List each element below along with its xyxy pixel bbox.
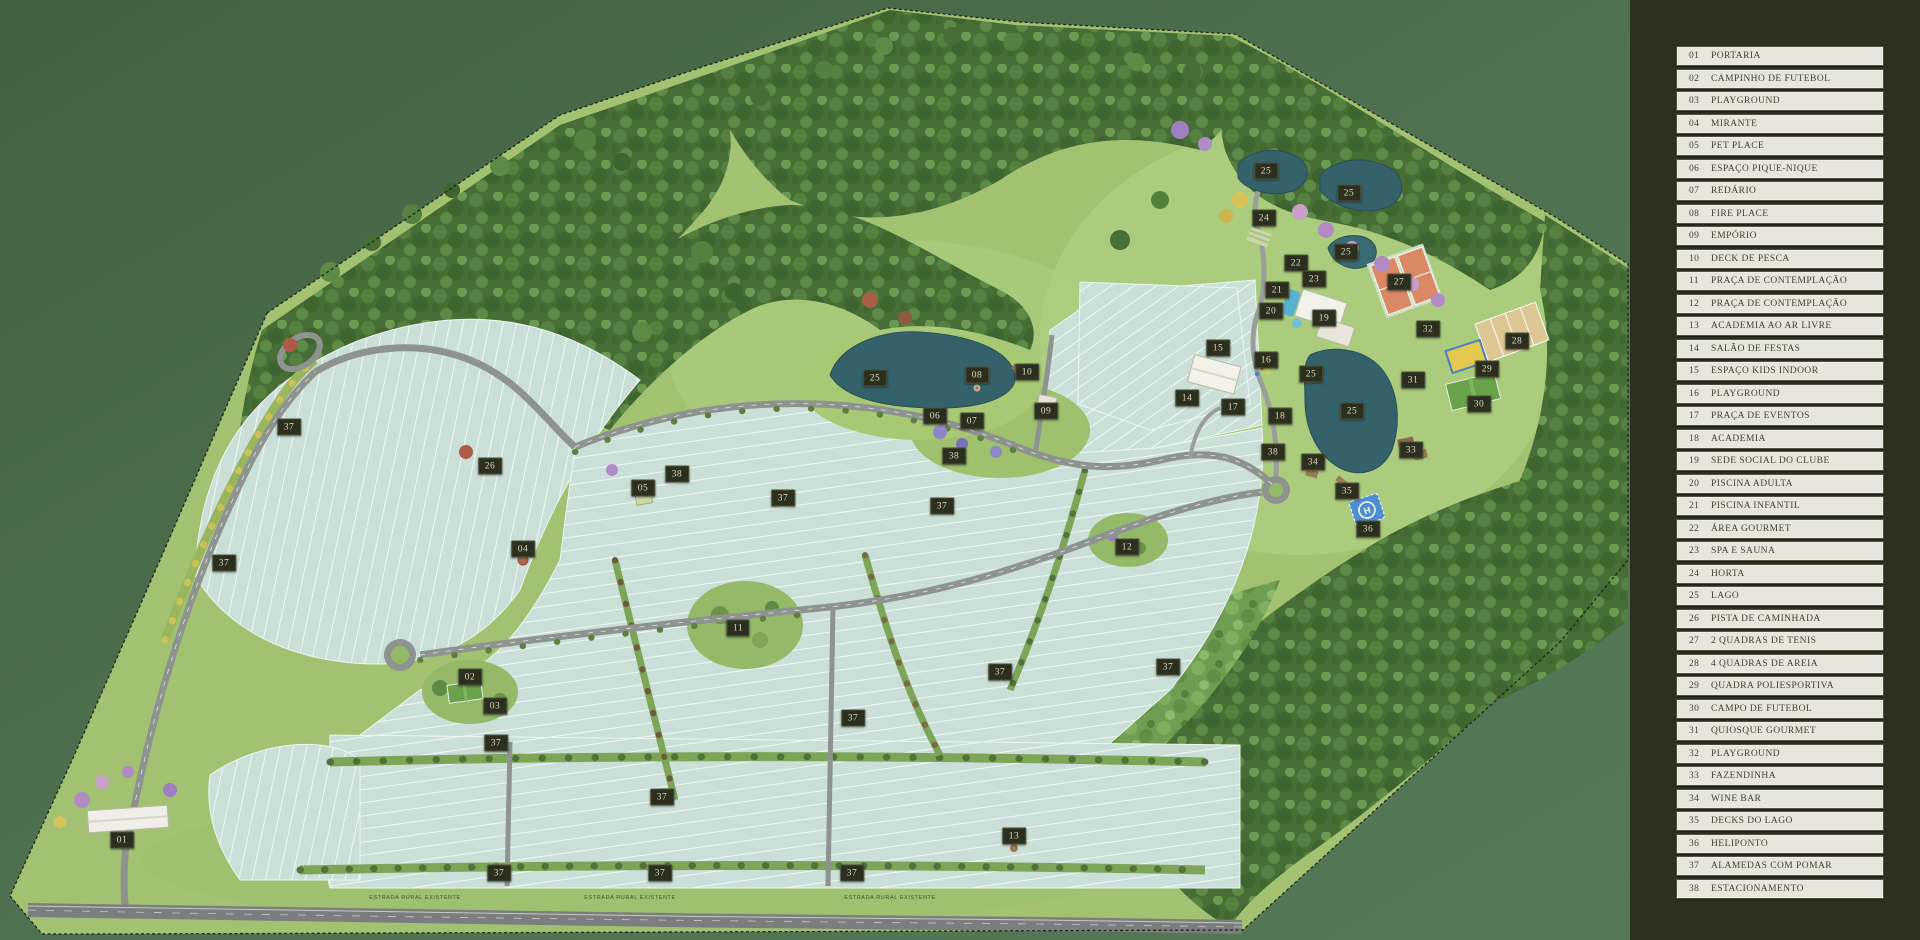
legend-item-label: LAGO — [1711, 591, 1739, 601]
legend-item-label: PET PLACE — [1711, 141, 1764, 151]
legend-item-label: PRAÇA DE CONTEMPLAÇÃO — [1711, 276, 1847, 286]
legend-item-02[interactable]: 02CAMPINHO DE FUTEBOL — [1676, 69, 1884, 89]
legend-item-label: ACADEMIA AO AR LIVRE — [1711, 321, 1832, 331]
map-marker-14[interactable]: 14 — [1175, 390, 1199, 407]
legend-item-label: ACADEMIA — [1711, 434, 1766, 444]
map-marker-36[interactable]: 36 — [1356, 521, 1380, 538]
map-marker-38[interactable]: 38 — [665, 466, 689, 483]
map-marker-23[interactable]: 23 — [1302, 271, 1326, 288]
legend-item-label: PLAYGROUND — [1711, 96, 1780, 106]
legend-item-38[interactable]: 38ESTACIONAMENTO — [1676, 879, 1884, 899]
legend-item-label: ESPAÇO KIDS INDOOR — [1711, 366, 1819, 376]
map-marker-30[interactable]: 30 — [1467, 396, 1491, 413]
map-marker-27[interactable]: 27 — [1387, 274, 1411, 291]
legend-item-label: PISTA DE CAMINHADA — [1711, 614, 1821, 624]
map-marker-22[interactable]: 22 — [1284, 255, 1308, 272]
legend-item-34[interactable]: 34WINE BAR — [1676, 789, 1884, 809]
map-marker-25[interactable]: 25 — [1337, 185, 1361, 202]
legend-item-33[interactable]: 33FAZENDINHA — [1676, 766, 1884, 786]
legend-item-31[interactable]: 31QUIOSQUE GOURMET — [1676, 721, 1884, 741]
legend-item-number: 15 — [1689, 366, 1711, 376]
legend-item-25[interactable]: 25LAGO — [1676, 586, 1884, 606]
legend-item-label: CAMPINHO DE FUTEBOL — [1711, 74, 1830, 84]
map-marker-37[interactable]: 37 — [930, 498, 954, 515]
legend-item-number: 24 — [1689, 569, 1711, 579]
legend-item-number: 18 — [1689, 434, 1711, 444]
map-marker-19[interactable]: 19 — [1312, 310, 1336, 327]
map-marker-18[interactable]: 18 — [1268, 408, 1292, 425]
map-marker-34[interactable]: 34 — [1301, 454, 1325, 471]
legend-item-13[interactable]: 13ACADEMIA AO AR LIVRE — [1676, 316, 1884, 336]
map-marker-16[interactable]: 16 — [1254, 352, 1278, 369]
legend-item-15[interactable]: 15ESPAÇO KIDS INDOOR — [1676, 361, 1884, 381]
legend-item-label: FAZENDINHA — [1711, 771, 1776, 781]
map-marker-32[interactable]: 32 — [1416, 321, 1440, 338]
legend-item-label: PISCINA ADULTA — [1711, 479, 1793, 489]
legend-item-label: 4 QUADRAS DE AREIA — [1711, 659, 1818, 669]
legend-item-label: PISCINA INFANTIL — [1711, 501, 1800, 511]
map-marker-08[interactable]: 08 — [965, 367, 989, 384]
map-marker-37[interactable]: 37 — [841, 710, 865, 727]
legend-panel: 01PORTARIA02CAMPINHO DE FUTEBOL03PLAYGRO… — [1630, 0, 1920, 940]
legend-item-label: QUADRA POLIESPORTIVA — [1711, 681, 1834, 691]
legend-item-label: PLAYGROUND — [1711, 749, 1780, 759]
map-marker-28[interactable]: 28 — [1505, 333, 1529, 350]
legend-item-number: 05 — [1689, 141, 1711, 151]
map-marker-37[interactable]: 37 — [487, 865, 511, 882]
legend-item-number: 28 — [1689, 659, 1711, 669]
map-marker-25[interactable]: 25 — [863, 370, 887, 387]
legend-item-label: HELIPONTO — [1711, 839, 1768, 849]
legend-item-20[interactable]: 20PISCINA ADULTA — [1676, 474, 1884, 494]
map-marker-05[interactable]: 05 — [631, 480, 655, 497]
map-marker-37[interactable]: 37 — [1156, 659, 1180, 676]
map-marker-09[interactable]: 09 — [1034, 403, 1058, 420]
map-marker-25[interactable]: 25 — [1299, 366, 1323, 383]
legend-item-03[interactable]: 03PLAYGROUND — [1676, 91, 1884, 111]
legend-item-number: 13 — [1689, 321, 1711, 331]
map-marker-15[interactable]: 15 — [1206, 340, 1230, 357]
legend-item-number: 37 — [1689, 861, 1711, 871]
map-marker-38[interactable]: 38 — [1261, 444, 1285, 461]
legend-item-label: FIRE PLACE — [1711, 209, 1769, 219]
legend-item-number: 36 — [1689, 839, 1711, 849]
map-marker-37[interactable]: 37 — [648, 865, 672, 882]
legend-item-label: PRAÇA DE EVENTOS — [1711, 411, 1810, 421]
legend-item-label: 2 QUADRAS DE TENIS — [1711, 636, 1816, 646]
legend-item-label: ESTACIONAMENTO — [1711, 884, 1804, 894]
legend-item-32[interactable]: 32PLAYGROUND — [1676, 744, 1884, 764]
legend-item-number: 31 — [1689, 726, 1711, 736]
legend-item-number: 09 — [1689, 231, 1711, 241]
legend-list: 01PORTARIA02CAMPINHO DE FUTEBOL03PLAYGRO… — [1676, 46, 1884, 899]
map-marker-33[interactable]: 33 — [1399, 442, 1423, 459]
legend-item-29[interactable]: 29QUADRA POLIESPORTIVA — [1676, 676, 1884, 696]
legend-item-number: 38 — [1689, 884, 1711, 894]
map-marker-13[interactable]: 13 — [1002, 828, 1026, 845]
map-marker-12[interactable]: 12 — [1115, 539, 1139, 556]
map-marker-06[interactable]: 06 — [923, 408, 947, 425]
legend-item-09[interactable]: 09EMPÓRIO — [1676, 226, 1884, 246]
map-marker-02[interactable]: 02 — [458, 669, 482, 686]
legend-item-number: 23 — [1689, 546, 1711, 556]
legend-item-number: 26 — [1689, 614, 1711, 624]
legend-item-label: ESPAÇO PIQUE-NIQUE — [1711, 164, 1818, 174]
legend-item-number: 17 — [1689, 411, 1711, 421]
legend-item-number: 21 — [1689, 501, 1711, 511]
legend-item-27[interactable]: 272 QUADRAS DE TENIS — [1676, 631, 1884, 651]
legend-item-label: PRAÇA DE CONTEMPLAÇÃO — [1711, 299, 1847, 309]
legend-item-number: 11 — [1689, 276, 1711, 286]
legend-item-number: 25 — [1689, 591, 1711, 601]
legend-item-number: 33 — [1689, 771, 1711, 781]
legend-item-number: 03 — [1689, 96, 1711, 106]
legend-item-label: CAMPO DE FUTEBOL — [1711, 704, 1812, 714]
map-marker-35[interactable]: 35 — [1335, 483, 1359, 500]
legend-item-label: WINE BAR — [1711, 794, 1761, 804]
legend-item-number: 10 — [1689, 254, 1711, 264]
legend-item-label: REDÁRIO — [1711, 186, 1756, 196]
map-marker-25[interactable]: 25 — [1254, 163, 1278, 180]
legend-item-label: MIRANTE — [1711, 119, 1757, 129]
legend-item-08[interactable]: 08FIRE PLACE — [1676, 204, 1884, 224]
legend-item-number: 20 — [1689, 479, 1711, 489]
map-marker-03[interactable]: 03 — [483, 698, 507, 715]
legend-item-21[interactable]: 21PISCINA INFANTIL — [1676, 496, 1884, 516]
legend-item-06[interactable]: 06ESPAÇO PIQUE-NIQUE — [1676, 159, 1884, 179]
legend-item-17[interactable]: 17PRAÇA DE EVENTOS — [1676, 406, 1884, 426]
legend-item-11[interactable]: 11PRAÇA DE CONTEMPLAÇÃO — [1676, 271, 1884, 291]
legend-item-number: 22 — [1689, 524, 1711, 534]
map-marker-37[interactable]: 37 — [840, 865, 864, 882]
legend-item-label: PLAYGROUND — [1711, 389, 1780, 399]
legend-item-30[interactable]: 30CAMPO DE FUTEBOL — [1676, 699, 1884, 719]
map-marker-10[interactable]: 10 — [1015, 364, 1039, 381]
legend-item-24[interactable]: 24HORTA — [1676, 564, 1884, 584]
map-marker-20[interactable]: 20 — [1259, 303, 1283, 320]
map-container: H — [0, 0, 1630, 940]
map-marker-31[interactable]: 31 — [1401, 372, 1425, 389]
legend-item-number: 16 — [1689, 389, 1711, 399]
legend-item-number: 29 — [1689, 681, 1711, 691]
map-marker-38[interactable]: 38 — [942, 448, 966, 465]
legend-item-14[interactable]: 14SALÃO DE FESTAS — [1676, 339, 1884, 359]
legend-item-number: 34 — [1689, 794, 1711, 804]
map-marker-25[interactable]: 25 — [1334, 244, 1358, 261]
map-marker-17[interactable]: 17 — [1221, 399, 1245, 416]
legend-item-label: ALAMEDAS COM POMAR — [1711, 861, 1832, 871]
legend-item-10[interactable]: 10DECK DE PESCA — [1676, 249, 1884, 269]
map-marker-01[interactable]: 01 — [110, 832, 134, 849]
legend-item-label: DECKS DO LAGO — [1711, 816, 1793, 826]
legend-item-label: HORTA — [1711, 569, 1745, 579]
legend-item-number: 06 — [1689, 164, 1711, 174]
legend-item-number: 08 — [1689, 209, 1711, 219]
legend-item-05[interactable]: 05PET PLACE — [1676, 136, 1884, 156]
legend-item-07[interactable]: 07REDÁRIO — [1676, 181, 1884, 201]
map-marker-29[interactable]: 29 — [1475, 361, 1499, 378]
map-marker-11[interactable]: 11 — [726, 620, 749, 637]
map-marker-37[interactable]: 37 — [484, 735, 508, 752]
legend-item-number: 32 — [1689, 749, 1711, 759]
legend-item-19[interactable]: 19SEDE SOCIAL DO CLUBE — [1676, 451, 1884, 471]
legend-item-number: 07 — [1689, 186, 1711, 196]
map-marker-26[interactable]: 26 — [478, 458, 502, 475]
legend-item-18[interactable]: 18ACADEMIA — [1676, 429, 1884, 449]
legend-item-number: 30 — [1689, 704, 1711, 714]
legend-item-label: SEDE SOCIAL DO CLUBE — [1711, 456, 1830, 466]
map-marker-07[interactable]: 07 — [960, 413, 984, 430]
legend-item-36[interactable]: 36HELIPONTO — [1676, 834, 1884, 854]
legend-item-16[interactable]: 16PLAYGROUND — [1676, 384, 1884, 404]
legend-item-number: 12 — [1689, 299, 1711, 309]
legend-item-number: 02 — [1689, 74, 1711, 84]
legend-item-23[interactable]: 23SPA E SAUNA — [1676, 541, 1884, 561]
map-art: H — [0, 0, 1630, 940]
legend-item-22[interactable]: 22ÁREA GOURMET — [1676, 519, 1884, 539]
legend-item-label: PORTARIA — [1711, 51, 1761, 61]
map-marker-37[interactable]: 37 — [988, 664, 1012, 681]
legend-item-12[interactable]: 12PRAÇA DE CONTEMPLAÇÃO — [1676, 294, 1884, 314]
map-marker-24[interactable]: 24 — [1252, 210, 1276, 227]
legend-item-04[interactable]: 04MIRANTE — [1676, 114, 1884, 134]
legend-item-number: 04 — [1689, 119, 1711, 129]
legend-item-label: DECK DE PESCA — [1711, 254, 1790, 264]
map-marker-37[interactable]: 37 — [212, 555, 236, 572]
legend-item-label: ÁREA GOURMET — [1711, 524, 1791, 534]
map-marker-21[interactable]: 21 — [1265, 282, 1289, 299]
legend-item-label: EMPÓRIO — [1711, 231, 1757, 241]
legend-item-number: 27 — [1689, 636, 1711, 646]
legend-item-number: 01 — [1689, 51, 1711, 61]
legend-item-number: 14 — [1689, 344, 1711, 354]
map-marker-04[interactable]: 04 — [511, 541, 535, 558]
legend-item-01[interactable]: 01PORTARIA — [1676, 46, 1884, 66]
legend-item-26[interactable]: 26PISTA DE CAMINHADA — [1676, 609, 1884, 629]
map-marker-25[interactable]: 25 — [1340, 403, 1364, 420]
masterplan-screenshot: H — [0, 0, 1920, 940]
legend-item-number: 35 — [1689, 816, 1711, 826]
legend-item-label: QUIOSQUE GOURMET — [1711, 726, 1816, 736]
map-marker-37[interactable]: 37 — [771, 490, 795, 507]
map-marker-37[interactable]: 37 — [277, 419, 301, 436]
legend-item-number: 19 — [1689, 456, 1711, 466]
legend-item-35[interactable]: 35DECKS DO LAGO — [1676, 811, 1884, 831]
legend-item-37[interactable]: 37ALAMEDAS COM POMAR — [1676, 856, 1884, 876]
map-marker-37[interactable]: 37 — [650, 789, 674, 806]
legend-item-label: SPA E SAUNA — [1711, 546, 1775, 556]
legend-item-label: SALÃO DE FESTAS — [1711, 344, 1800, 354]
legend-item-28[interactable]: 284 QUADRAS DE AREIA — [1676, 654, 1884, 674]
